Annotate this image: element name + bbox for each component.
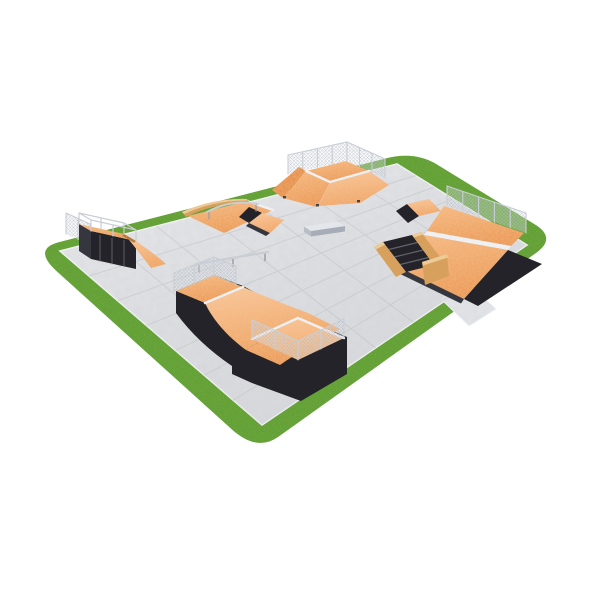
skatepark-3d-render: 3D render of a modular skatepark on a ti… bbox=[0, 0, 600, 600]
skatepark-scene bbox=[0, 0, 600, 600]
